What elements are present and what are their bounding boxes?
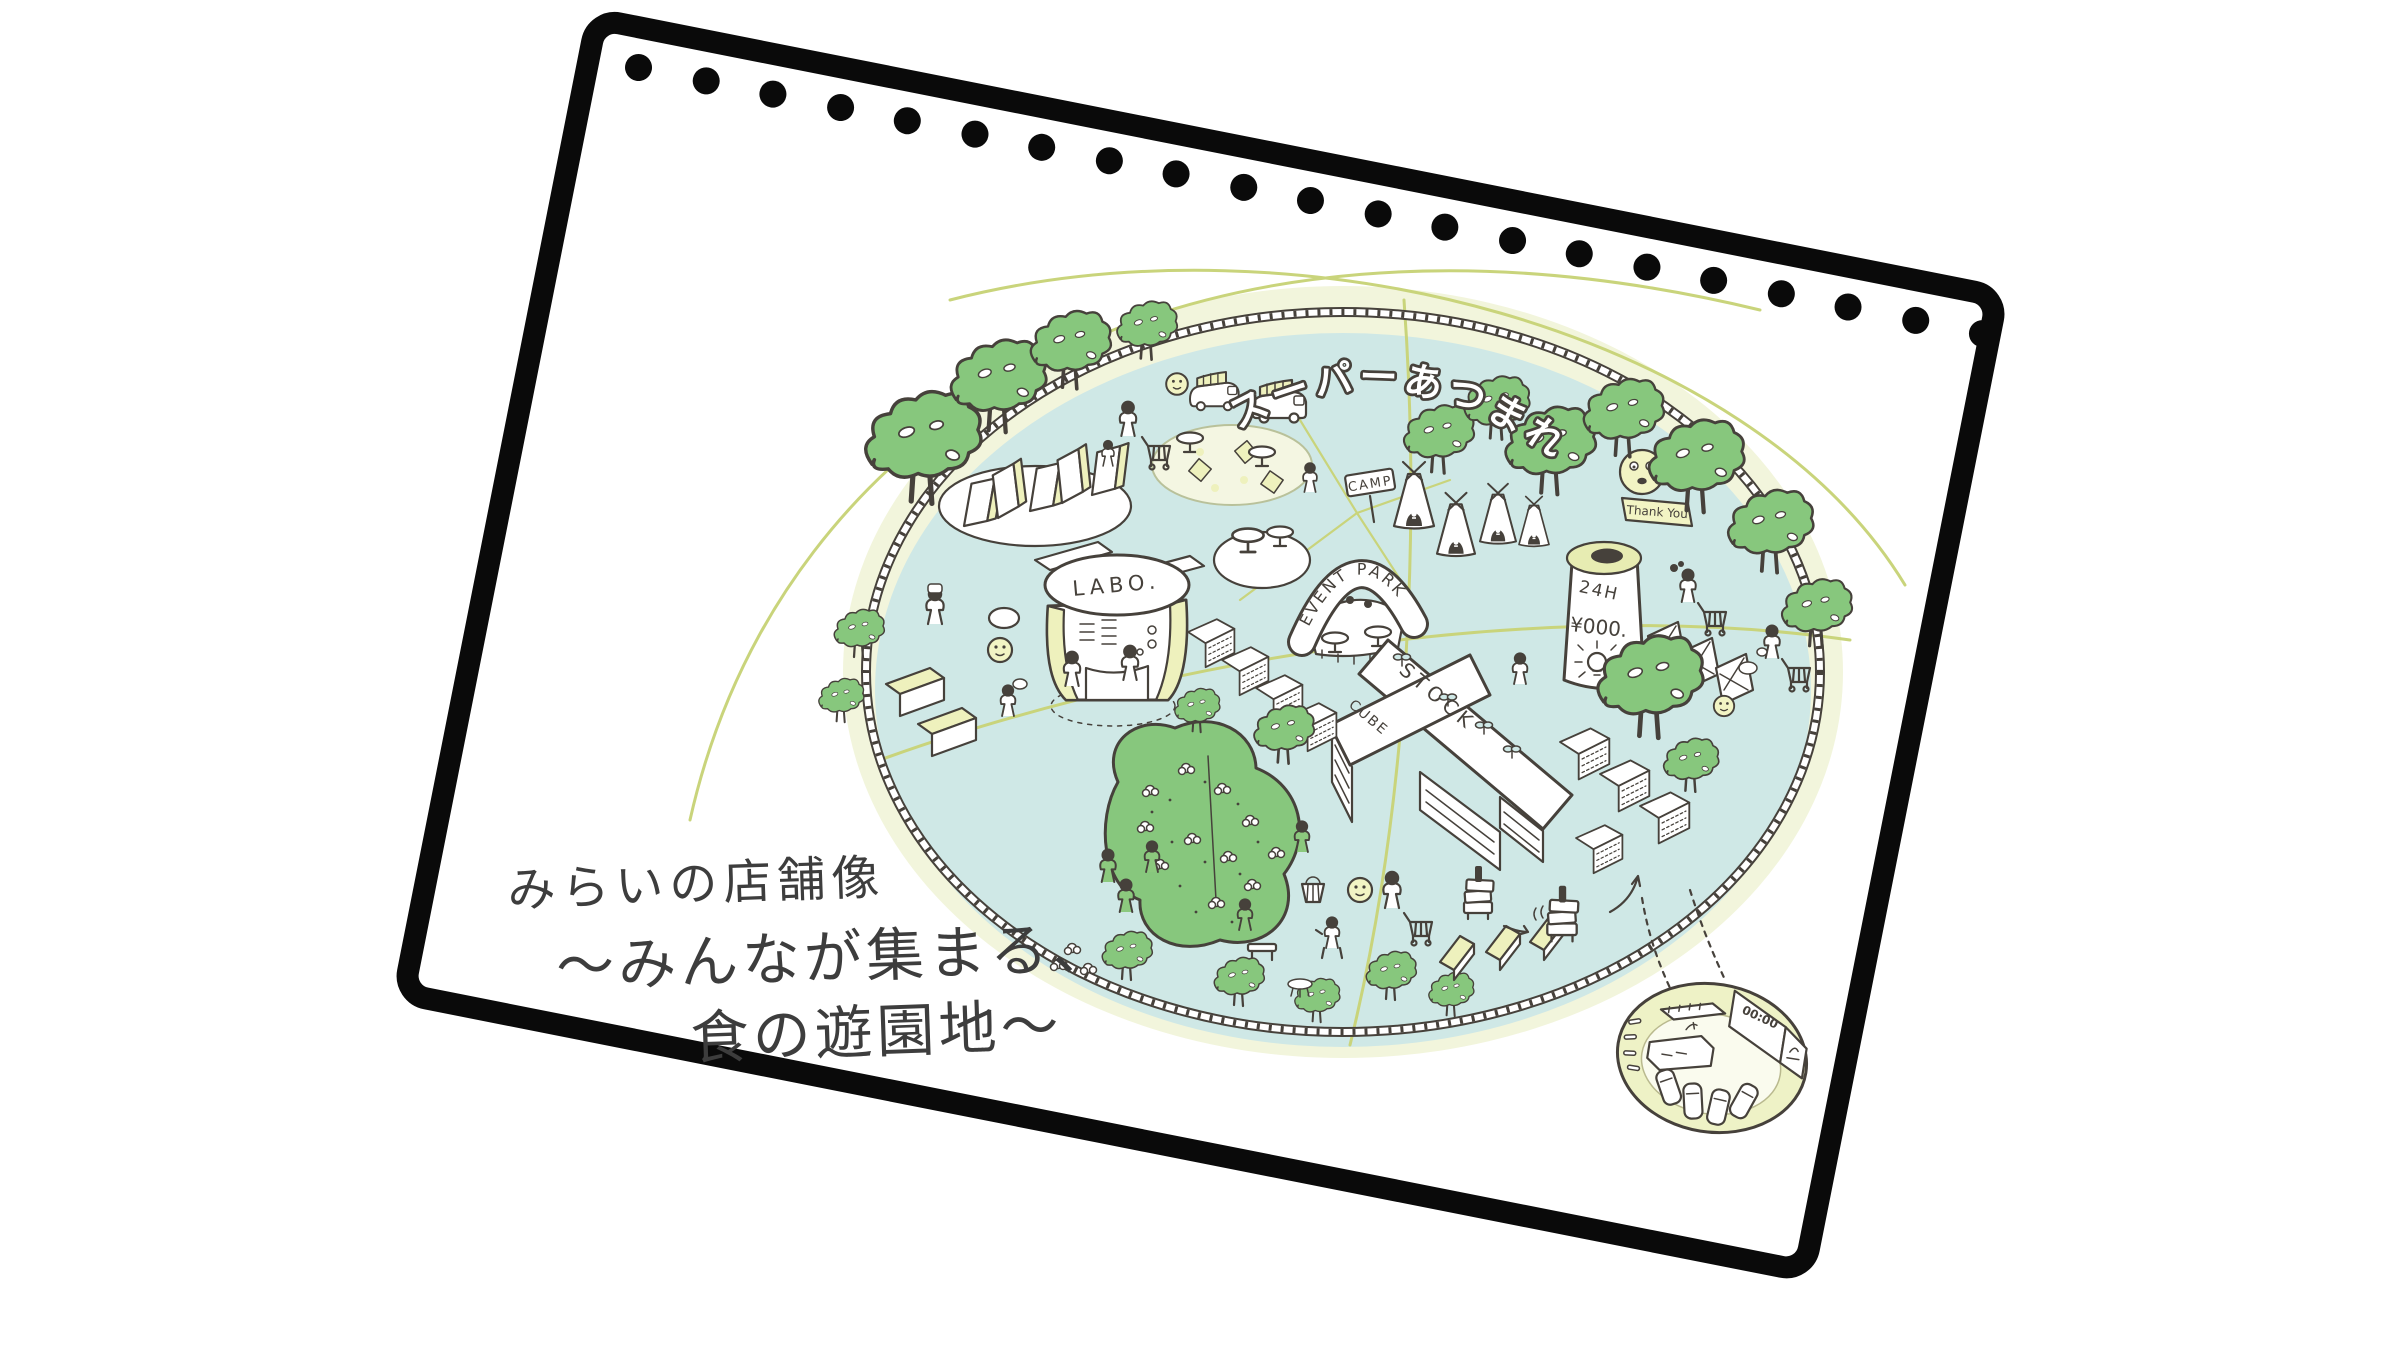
caption-line-2: 〜みんなが集まる、 <box>555 914 1115 1001</box>
park-illustration: LABO. EVENT PARK CAMP <box>0 0 2404 1365</box>
inset-room: 00:00 <box>1607 970 1818 1146</box>
picnic-area <box>1152 425 1312 505</box>
caption-line-3: 食の遊園地〜 <box>690 992 1064 1073</box>
screenshot-stage: LABO. EVENT PARK CAMP <box>0 0 2404 1365</box>
caption-line-1: みらいの店舗像 <box>506 850 886 919</box>
chef-figure <box>926 584 943 624</box>
